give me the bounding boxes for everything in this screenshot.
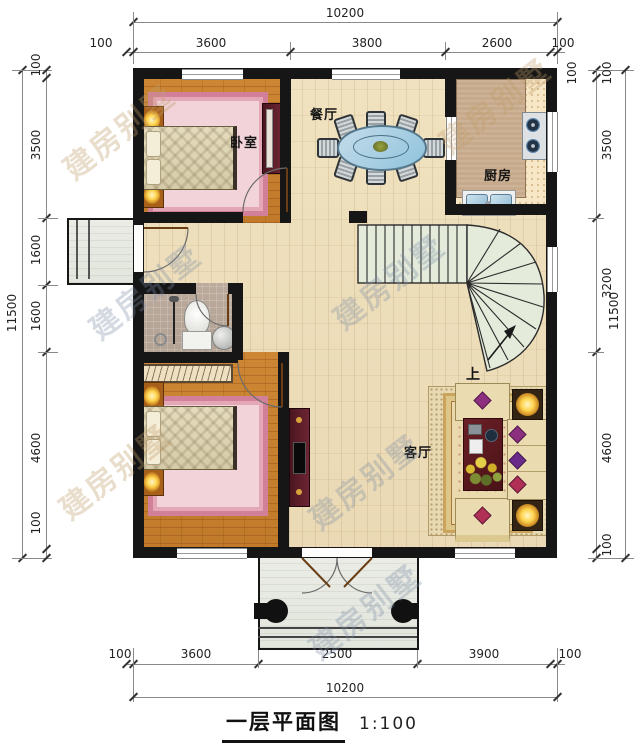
burner: [526, 118, 540, 132]
title-bar: 一层平面图 1:100: [170, 706, 470, 743]
bed-top: [142, 126, 237, 190]
shower-rod: [173, 300, 175, 344]
kitchen-doorway: [446, 117, 457, 160]
burner: [526, 139, 540, 153]
table-centerpiece: [373, 141, 388, 152]
dim-ext-line: [417, 650, 418, 668]
page-title: 一层平面图: [222, 706, 345, 743]
coffee-table: [463, 418, 503, 491]
dim-line-top-total: [133, 22, 557, 23]
dim-top-seg: 2600: [467, 36, 527, 50]
tv-cabinet: [289, 408, 310, 507]
dim-left-total: 11500: [5, 263, 19, 363]
wall-kitchen-left-upper: [445, 68, 456, 117]
dining-chair: [317, 138, 339, 158]
room-label-bedroom-top: 卧室: [230, 132, 258, 151]
dim-top-seg: 100: [83, 36, 119, 50]
wall-bathroom-top: [133, 283, 196, 294]
dim-right-seg: 4600: [600, 398, 614, 498]
dim-bottom-seg: 100: [102, 647, 138, 661]
window-stairs: [547, 247, 558, 292]
dim-ext-line: [258, 650, 259, 668]
toilet-tank: [182, 331, 212, 350]
sofa-seam: [508, 445, 548, 446]
flower-bouquet: [462, 452, 504, 490]
room-label-dining: 餐厅: [310, 104, 338, 123]
floor-lamp: [512, 389, 543, 420]
side-porch-step-line: [76, 220, 78, 279]
dim-right-total: 11500: [607, 261, 621, 361]
wardrobe-mirror: [266, 109, 273, 168]
lamp-glow: [144, 386, 160, 406]
room-label-kitchen: 厨房: [484, 165, 512, 184]
cabinet-knob: [296, 417, 302, 423]
bench: [142, 364, 233, 383]
dim-bottom-seg: 100: [552, 647, 588, 661]
wall-bedroom-top-bottom: [133, 212, 243, 223]
dim-ext-line: [588, 218, 604, 219]
armchair-bottom: [455, 498, 510, 542]
window-kitchen: [547, 112, 558, 172]
wall-bedroom-bottom-top: [133, 352, 238, 363]
scale-label: 1:100: [359, 714, 418, 734]
wall-bedroom-top-right: [280, 68, 291, 223]
dim-bottom-seg: 3900: [454, 647, 514, 661]
cabinet-knob: [296, 489, 302, 495]
entry-porch-step-line: [258, 636, 417, 638]
window-bedroom-top: [182, 69, 243, 80]
lamp-glow: [516, 504, 539, 527]
window-living: [455, 548, 515, 559]
pillow: [146, 411, 161, 437]
dim-right-seg: 100: [600, 495, 614, 595]
porch-column-right: [391, 599, 415, 623]
dim-line-bottom-segments: [125, 664, 565, 665]
dim-line-right-segments: [596, 70, 597, 558]
stove: [522, 112, 548, 160]
sofa-seam: [508, 471, 548, 472]
dim-bottom-total: 10200: [295, 681, 395, 695]
lamp-glow: [144, 472, 160, 492]
pillow: [146, 159, 161, 185]
stairs-up-label: 上: [466, 364, 481, 384]
dim-left-seg: 1600: [29, 266, 43, 366]
table-item: [485, 429, 498, 442]
dim-top-seg: 3600: [181, 36, 241, 50]
dim-top-corner: 100: [565, 23, 579, 123]
side-door-opening: [134, 225, 143, 272]
window-dining: [332, 69, 400, 80]
sofa-pillow: [473, 506, 491, 524]
dim-bottom-seg: 3600: [166, 647, 226, 661]
pillow: [146, 439, 161, 465]
dim-top-seg: 3800: [337, 36, 397, 50]
toilet-bowl: [184, 300, 210, 335]
sofa-pillow: [508, 425, 526, 443]
wall-bedroom-bottom-right: [278, 352, 289, 558]
dim-line-left-segments: [46, 70, 47, 558]
sofa-pillow: [508, 451, 526, 469]
dim-bottom-seg: 2500: [307, 647, 367, 661]
bed-bottom: [142, 406, 237, 470]
dim-ext-line: [588, 352, 604, 353]
sofa-pillow: [473, 391, 491, 409]
shower-head: [169, 296, 179, 302]
entry-door-opening: [302, 548, 372, 557]
dim-right-seg: 3500: [600, 95, 614, 195]
entry-porch-step-line: [258, 627, 417, 629]
wall-kitchen-bottom: [445, 204, 557, 215]
side-porch-step-line: [88, 220, 90, 279]
table-item: [468, 424, 482, 435]
room-label-living: 客厅: [404, 442, 432, 461]
window-bedroom-bottom: [177, 548, 247, 559]
porch-column-left: [264, 599, 288, 623]
armchair-top: [455, 383, 510, 421]
dining-table: [337, 125, 427, 171]
dim-line-right-total: [625, 70, 626, 558]
sofa-pillow: [508, 475, 526, 493]
pillow: [146, 131, 161, 157]
dim-line-left-total: [22, 70, 23, 558]
lamp-glow: [516, 393, 539, 416]
dim-left-seg: 3500: [29, 95, 43, 195]
dim-left-seg: 100: [29, 473, 43, 573]
tv-screen: [293, 442, 306, 474]
wall-exterior-left: [133, 68, 144, 558]
wall-bathroom-right: [232, 283, 243, 360]
wall-bedroom-top-bottom-jamb: [287, 212, 291, 223]
dim-ext-line: [133, 12, 134, 64]
floor-plan-canvas: 卧室 餐厅 厨房 客厅 上 10200 100 3600 3800 2600 1…: [0, 0, 640, 750]
dim-line-top-segments: [125, 52, 565, 53]
floor-drain: [154, 333, 167, 346]
wall-stub-stairs: [349, 211, 367, 223]
dim-top-total: 10200: [295, 6, 395, 20]
dim-line-bottom-total: [133, 697, 557, 698]
floor-lamp: [512, 500, 543, 531]
